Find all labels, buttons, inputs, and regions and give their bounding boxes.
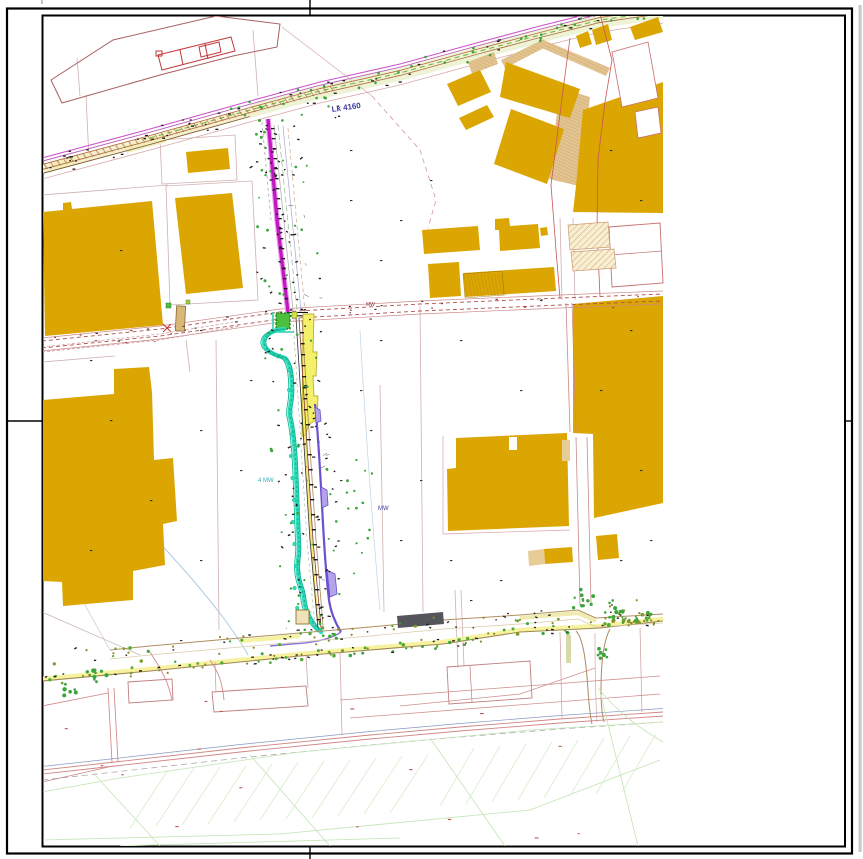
svg-text:MW: MW (378, 506, 389, 512)
svg-text:4 MW: 4 MW (258, 478, 274, 484)
svg-text:MW: MW (366, 302, 375, 308)
